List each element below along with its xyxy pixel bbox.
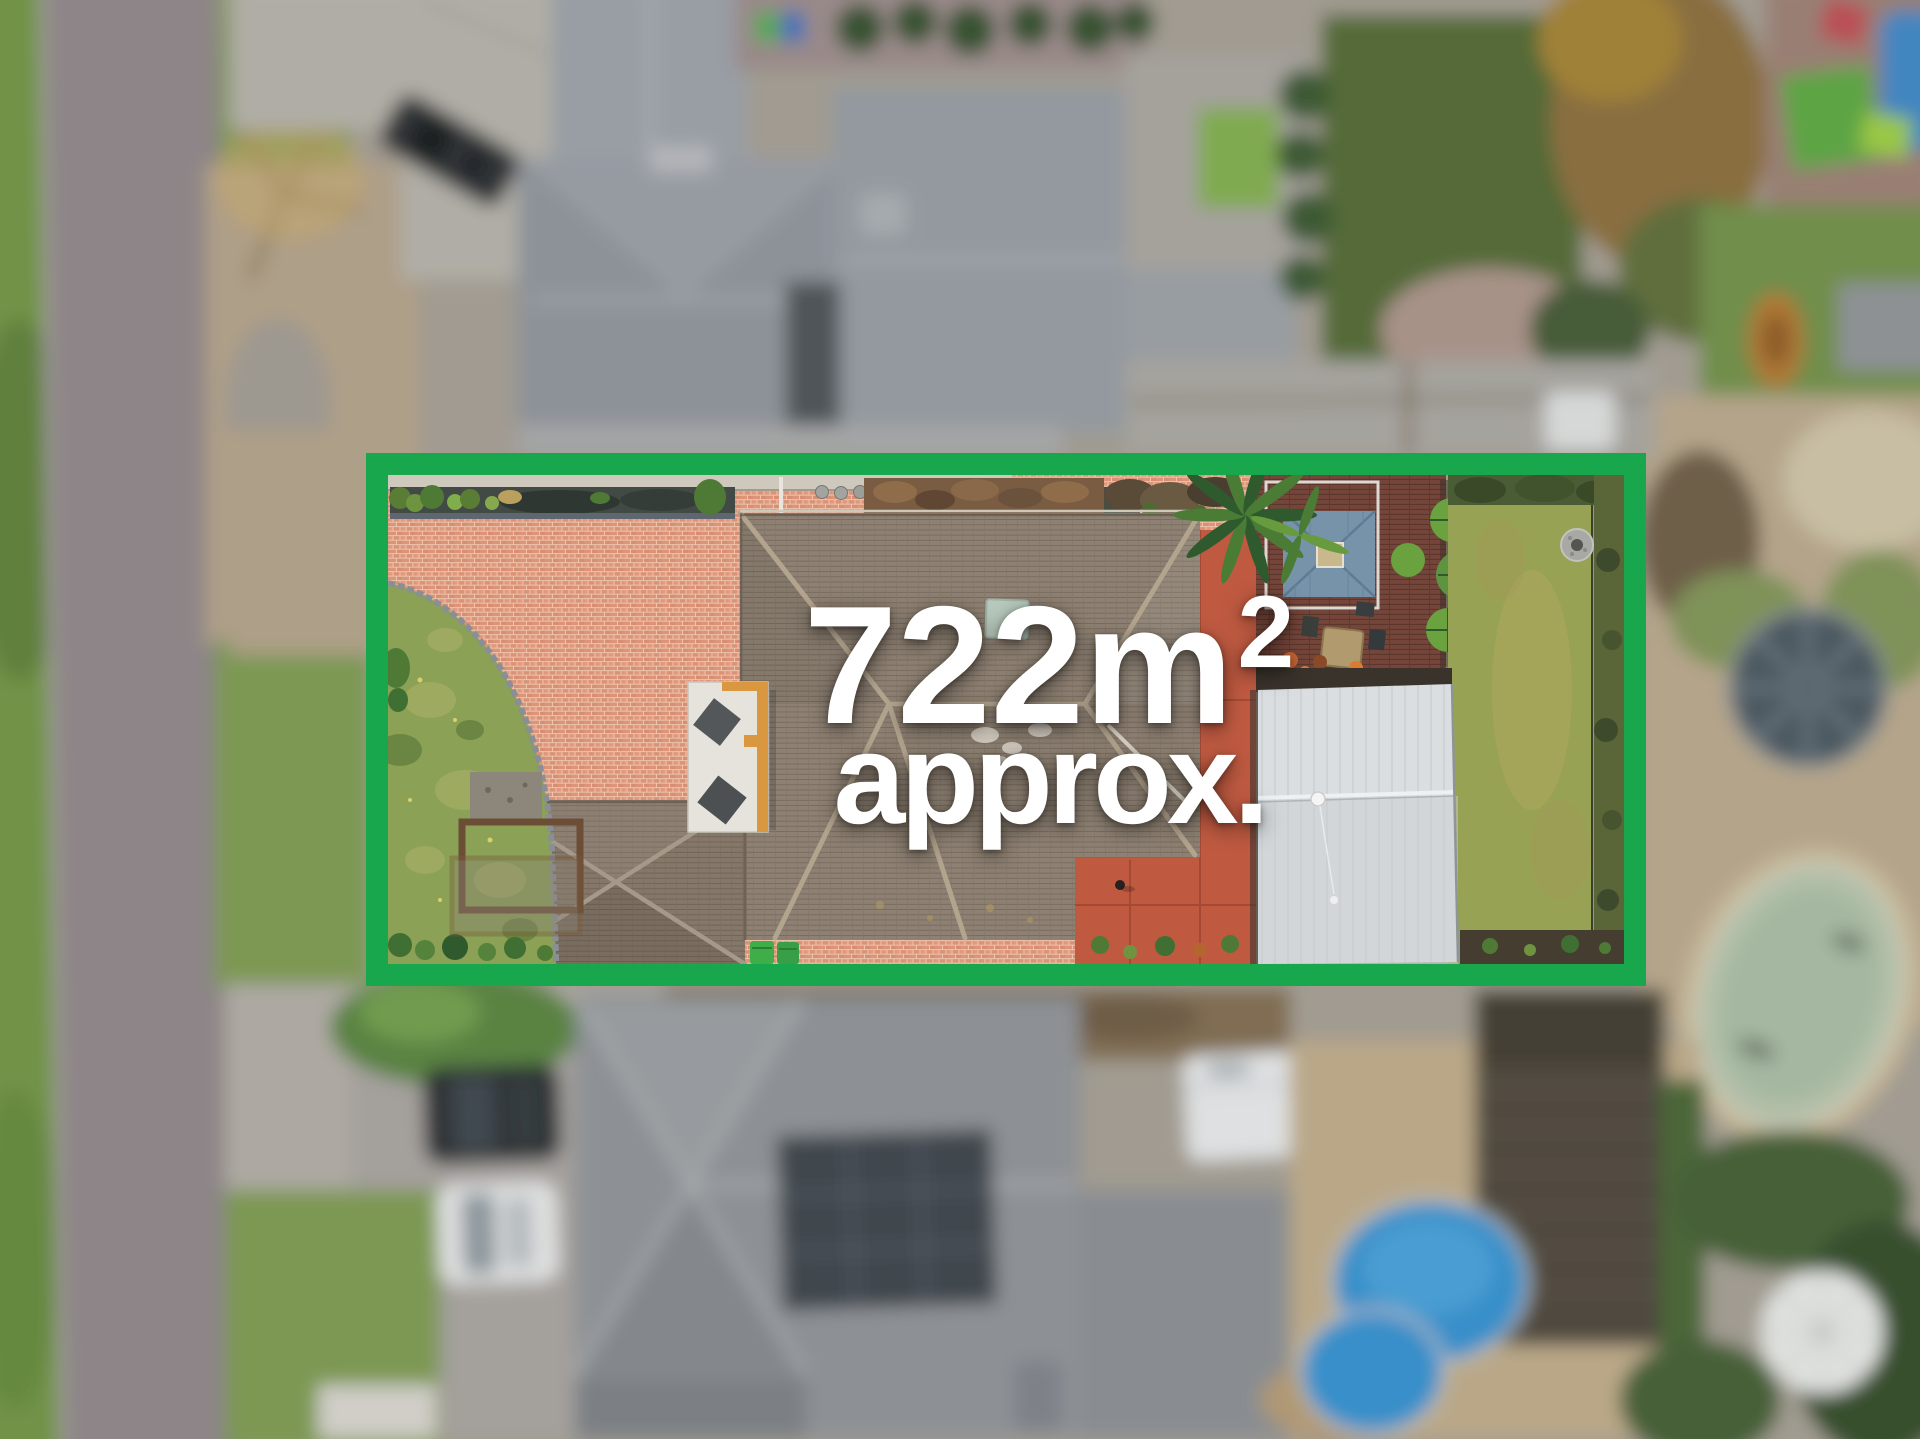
area-exponent: 2	[1237, 581, 1294, 683]
area-qualifier: approx.	[619, 715, 1479, 844]
dead-hedge	[864, 478, 1140, 514]
shrub	[694, 479, 726, 515]
area-overlay: 722m2 approx.	[619, 581, 1479, 844]
plant-pots	[816, 486, 867, 500]
aerial-photo: 722m2 approx.	[0, 0, 1920, 1439]
fence-post	[779, 477, 783, 513]
